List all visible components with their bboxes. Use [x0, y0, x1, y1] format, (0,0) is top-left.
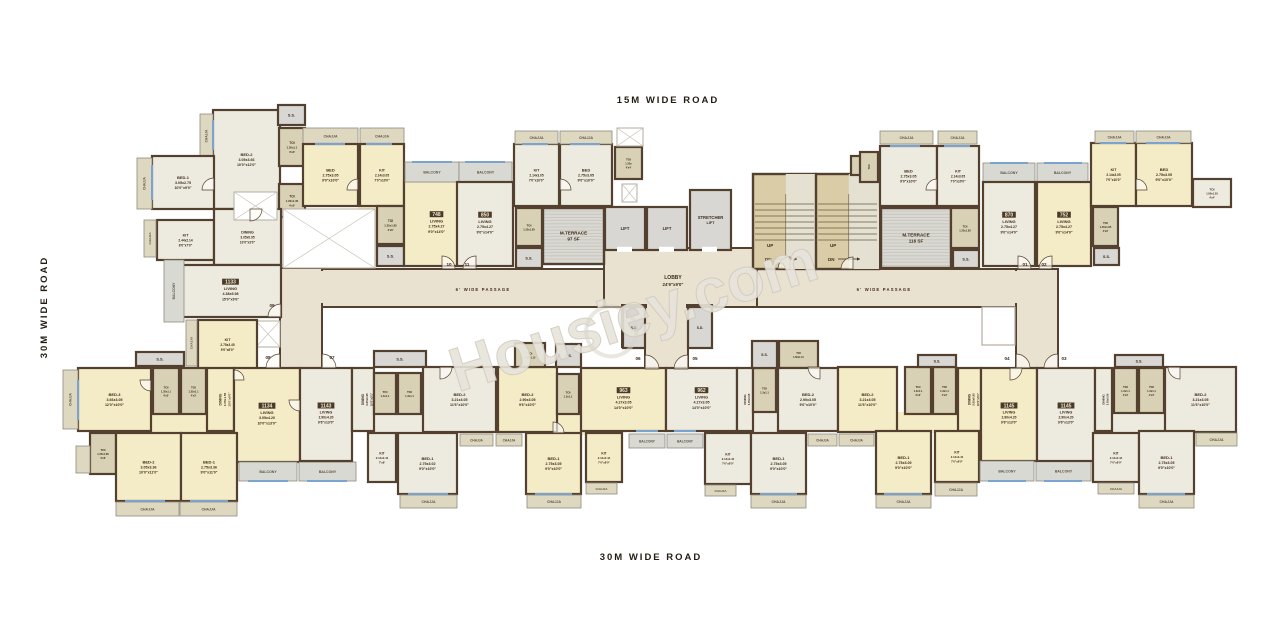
svg-text:1143: 1143 [321, 403, 332, 409]
svg-text:3.05x0.95: 3.05x0.95 [240, 236, 254, 240]
svg-text:1.80x1.20: 1.80x1.20 [1206, 192, 1218, 196]
svg-text:S.S.: S.S. [525, 257, 532, 261]
svg-text:2.75x3.05: 2.75x3.05 [901, 175, 917, 179]
svg-text:9'0"x10'0": 9'0"x10'0" [577, 179, 594, 183]
svg-text:DINING: DINING [743, 394, 747, 405]
svg-text:9'0"x10'0": 9'0"x10'0" [1158, 466, 1175, 470]
svg-text:KIT: KIT [379, 452, 384, 456]
svg-text:1145: 1145 [1061, 403, 1072, 409]
svg-text:2.90x3.05: 2.90x3.05 [520, 398, 536, 402]
svg-text:4'x6': 4'x6' [1103, 229, 1109, 233]
svg-text:01: 01 [1022, 262, 1028, 267]
svg-text:1.3x1.1: 1.3x1.1 [940, 389, 949, 393]
svg-text:CHAJJA: CHAJJA [1159, 500, 1173, 504]
svg-text:4'x6': 4'x6' [388, 228, 394, 232]
svg-text:9'6"x13'0": 9'6"x13'0" [1058, 421, 1075, 425]
svg-text:CHAJJA: CHAJJA [68, 392, 72, 405]
svg-text:KIT: KIT [183, 234, 190, 238]
svg-text:9'0"x14'0": 9'0"x14'0" [476, 230, 493, 234]
svg-text:4'x3': 4'x3' [191, 394, 197, 398]
svg-text:KIT: KIT [725, 453, 730, 457]
svg-text:4'x3': 4'x3' [163, 394, 169, 398]
svg-text:2.14x3.05: 2.14x3.05 [375, 174, 389, 178]
svg-text:CHAJJA: CHAJJA [375, 134, 389, 138]
svg-text:4.27x3.05: 4.27x3.05 [694, 401, 710, 405]
svg-text:4'x4': 4'x4' [626, 166, 632, 170]
svg-text:LIVING: LIVING [1003, 411, 1016, 415]
svg-text:9'0"x14'0": 9'0"x14'0" [1055, 230, 1072, 234]
svg-text:9'0"x10'0": 9'0"x10'0" [900, 180, 917, 184]
svg-text:TOI: TOI [383, 390, 388, 394]
svg-text:CHAJJA: CHAJJA [896, 500, 910, 504]
svg-text:2.14x2.44: 2.14x2.44 [1110, 456, 1123, 460]
svg-text:TOI: TOI [942, 385, 947, 389]
svg-text:KIT: KIT [1113, 452, 1118, 456]
svg-text:S.S.: S.S. [761, 353, 768, 357]
svg-text:9'6"x10'0": 9'6"x10'0" [799, 403, 816, 407]
svg-text:10'0"x5'0": 10'0"x5'0" [227, 392, 231, 407]
svg-text:10'0"x9'0": 10'0"x9'0" [174, 186, 191, 190]
svg-text:3.05x0.95: 3.05x0.95 [747, 393, 751, 405]
svg-text:BED: BED [904, 168, 913, 173]
svg-text:CHAJJA: CHAJJA [1110, 487, 1123, 491]
svg-text:870: 870 [1005, 213, 1014, 219]
svg-text:9'0"x10'0": 9'0"x10'0" [419, 467, 436, 471]
svg-text:1.80x1.10: 1.80x1.10 [793, 356, 804, 359]
svg-text:1.35x1.85: 1.35x1.85 [1100, 225, 1112, 229]
svg-text:850: 850 [481, 213, 490, 219]
svg-text:KIT: KIT [601, 452, 606, 456]
svg-text:TOI: TOI [762, 386, 767, 390]
svg-text:BED-2: BED-2 [521, 392, 534, 397]
svg-text:S.S.: S.S. [1103, 255, 1110, 259]
svg-text:CHAJJA: CHAJJA [470, 438, 483, 442]
svg-text:CHAJJA: CHAJJA [1107, 135, 1121, 139]
svg-text:BED-1: BED-1 [772, 456, 785, 461]
svg-text:4.38x5.98: 4.38x5.98 [223, 292, 239, 296]
svg-text:CHAJJA: CHAJJA [189, 336, 193, 349]
svg-text:CHAJJA: CHAJJA [201, 507, 215, 511]
svg-text:2.75x3.05: 2.75x3.05 [1156, 173, 1172, 177]
svg-text:TOI: TOI [626, 157, 631, 161]
svg-text:LIVING: LIVING [478, 219, 491, 224]
svg-text:7'x8': 7'x8' [379, 460, 385, 464]
svg-text:LIFT: LIFT [706, 221, 715, 225]
svg-text:7'0"x8'0": 7'0"x8'0" [1110, 460, 1122, 464]
svg-text:1134: 1134 [262, 404, 273, 410]
svg-text:LIVING: LIVING [320, 411, 333, 415]
svg-text:3.66x3.05: 3.66x3.05 [107, 398, 123, 402]
svg-text:1.3x1.1: 1.3x1.1 [760, 391, 769, 395]
svg-text:BED-3: BED-3 [108, 392, 121, 397]
svg-text:2.75x3.05: 2.75x3.05 [771, 462, 787, 466]
svg-text:LIFT: LIFT [663, 226, 672, 231]
svg-text:BED-1: BED-1 [1160, 455, 1173, 460]
svg-text:752: 752 [1060, 213, 1069, 219]
svg-text:9'0"x10'0": 9'0"x10'0" [322, 179, 339, 183]
svg-text:2.75x3.05: 2.75x3.05 [323, 174, 339, 178]
svg-text:2.75x4.27: 2.75x4.27 [477, 225, 493, 229]
svg-text:07: 07 [329, 355, 335, 360]
svg-text:1.35x1.1: 1.35x1.1 [287, 146, 298, 150]
svg-text:BED-1: BED-1 [421, 456, 434, 461]
svg-text:1.35x1.85: 1.35x1.85 [523, 228, 535, 232]
svg-text:7'0"x8'0": 7'0"x8'0" [598, 460, 610, 464]
svg-text:BED-1: BED-1 [177, 175, 190, 180]
svg-text:14'0"x10'0": 14'0"x10'0" [692, 406, 711, 410]
svg-text:10'0"x3'0": 10'0"x3'0" [240, 240, 256, 244]
svg-text:7'0"x10'0": 7'0"x10'0" [950, 179, 966, 183]
svg-text:BALCONY: BALCONY [1055, 469, 1073, 473]
svg-text:KIT: KIT [955, 170, 962, 174]
svg-text:1.3x1.1: 1.3x1.1 [1147, 389, 1156, 393]
svg-text:TOI: TOI [527, 223, 532, 227]
svg-text:02: 02 [1041, 262, 1047, 267]
svg-text:1.35x1.85: 1.35x1.85 [384, 224, 397, 228]
svg-text:10'0"x3'1": 10'0"x3'1" [976, 392, 980, 406]
svg-text:11: 11 [465, 262, 470, 267]
svg-text:TOI: TOI [916, 385, 921, 389]
svg-text:1.3x1.1: 1.3x1.1 [914, 389, 923, 393]
svg-text:2.14x3.05: 2.14x3.05 [1106, 173, 1120, 177]
svg-text:2.75x3.05: 2.75x3.05 [1159, 461, 1175, 465]
svg-text:9'6"x13'0": 9'6"x13'0" [1001, 421, 1018, 425]
svg-text:11'6"x10'0": 11'6"x10'0" [1191, 403, 1210, 407]
svg-text:1.35x1.85: 1.35x1.85 [97, 452, 109, 456]
svg-text:DINING: DINING [1101, 394, 1105, 405]
svg-text:2.75x4.27: 2.75x4.27 [429, 225, 445, 229]
svg-text:TOI: TOI [407, 390, 412, 394]
svg-text:S.S.: S.S. [934, 360, 941, 364]
svg-text:3.05x3.36: 3.05x3.36 [141, 466, 157, 470]
svg-text:TOI: TOI [191, 385, 196, 389]
svg-text:S.S.: S.S. [1136, 360, 1143, 364]
svg-text:S.S.: S.S. [288, 114, 295, 118]
svg-text:CHAJJA: CHAJJA [1209, 438, 1223, 442]
svg-text:30M WIDE ROAD: 30M WIDE ROAD [39, 256, 50, 359]
svg-text:4'x6': 4'x6' [100, 456, 106, 460]
svg-text:3.21x3.05: 3.21x3.05 [860, 398, 876, 402]
svg-text:CHAJJA: CHAJJA [579, 136, 593, 140]
svg-text:04: 04 [1004, 356, 1010, 361]
svg-text:116 SF: 116 SF [909, 239, 924, 244]
svg-text:9'0"x8'0": 9'0"x8'0" [221, 348, 235, 352]
svg-text:10'0"x13'0": 10'0"x13'0" [257, 421, 276, 425]
svg-text:BED-1: BED-1 [203, 459, 216, 464]
svg-text:BALCONY: BALCONY [639, 439, 656, 443]
svg-text:4'x4': 4'x4' [1209, 196, 1215, 200]
svg-text:BALCONY: BALCONY [319, 470, 337, 474]
svg-text:BALCONY: BALCONY [259, 470, 277, 474]
svg-text:1.3x1.1: 1.3x1.1 [564, 395, 573, 399]
svg-text:7'0"x8'0": 7'0"x8'0" [722, 461, 734, 465]
svg-text:09: 09 [269, 303, 275, 308]
svg-text:3.05x1.55: 3.05x1.55 [223, 393, 227, 407]
svg-text:97 SF: 97 SF [567, 237, 579, 242]
svg-text:7'0"x8'0": 7'0"x8'0" [951, 459, 963, 463]
svg-text:TOI: TOI [1210, 187, 1215, 191]
svg-text:7'0"x10'0": 7'0"x10'0" [1106, 178, 1122, 182]
svg-text:CHAJJA: CHAJJA [816, 438, 829, 442]
svg-text:4'x3': 4'x3' [289, 150, 295, 154]
svg-text:CHAJJA: CHAJJA [547, 500, 561, 504]
svg-text:LIVING: LIVING [430, 218, 443, 223]
svg-text:2.75x4.27: 2.75x4.27 [1056, 225, 1072, 229]
svg-text:12'0"x10'0": 12'0"x10'0" [105, 403, 124, 407]
svg-text:CHAJJA: CHAJJA [140, 507, 154, 511]
svg-text:9'6"x13'0": 9'6"x13'0" [318, 421, 335, 425]
svg-text:BED: BED [326, 167, 335, 172]
svg-text:9'0"x10'0": 9'0"x10'0" [770, 467, 787, 471]
svg-text:BALCONY: BALCONY [677, 439, 694, 443]
svg-text:BED: BED [1160, 167, 1169, 172]
svg-text:CHAJJA: CHAJJA [899, 136, 913, 140]
svg-text:03: 03 [1061, 356, 1067, 361]
svg-text:LIVING: LIVING [1002, 219, 1015, 224]
svg-text:LIVING: LIVING [617, 394, 630, 399]
svg-text:3.05x3.66: 3.05x3.66 [239, 158, 255, 162]
svg-text:BED-2: BED-2 [142, 459, 155, 464]
svg-text:CHAJJA: CHAJJA [148, 232, 152, 245]
svg-text:2.90x4.20: 2.90x4.20 [1058, 416, 1073, 420]
svg-text:3.21x3.05: 3.21x3.05 [1193, 398, 1209, 402]
svg-text:BED-1: BED-1 [547, 456, 560, 461]
svg-text:BALCONY: BALCONY [423, 170, 441, 174]
svg-text:2.75x3.45: 2.75x3.45 [220, 343, 234, 347]
svg-text:BED-2: BED-2 [1194, 392, 1207, 397]
svg-text:7'0"x10'0": 7'0"x10'0" [529, 178, 545, 182]
svg-text:9'0"x10'0": 9'0"x10'0" [895, 466, 912, 470]
svg-text:S.S.: S.S. [156, 358, 163, 362]
svg-text:TOI: TOI [289, 141, 294, 145]
svg-text:CHAJJA: CHAJJA [714, 489, 727, 493]
svg-text:CHAJJA: CHAJJA [142, 176, 146, 189]
svg-text:10'0"x12'0": 10'0"x12'0" [237, 163, 256, 167]
svg-text:TOI: TOI [388, 219, 393, 223]
svg-text:962: 962 [697, 388, 706, 394]
svg-text:TOI: TOI [289, 195, 294, 199]
svg-text:TOI: TOI [164, 385, 169, 389]
svg-text:1.3x1.1: 1.3x1.1 [381, 394, 390, 398]
svg-text:TOI: TOI [1123, 385, 1128, 389]
svg-text:2.44x2.14: 2.44x2.14 [178, 239, 192, 243]
svg-text:TOI: TOI [566, 390, 571, 394]
svg-text:9'0"x14'0": 9'0"x14'0" [428, 230, 445, 234]
svg-text:2.14x2.44: 2.14x2.44 [376, 456, 389, 460]
svg-text:1.35x1.85: 1.35x1.85 [959, 229, 971, 233]
svg-text:14'0"x10'0": 14'0"x10'0" [614, 406, 633, 410]
svg-text:4'x3': 4'x3' [1149, 393, 1155, 397]
svg-text:2.75x3.36: 2.75x3.36 [201, 466, 217, 470]
svg-text:LIVING: LIVING [1060, 411, 1073, 415]
svg-text:CHAJJA: CHAJJA [950, 136, 964, 140]
svg-text:15M WIDE ROAD: 15M WIDE ROAD [617, 95, 720, 106]
svg-text:CHAJJA: CHAJJA [421, 500, 435, 504]
svg-text:06: 06 [635, 356, 641, 361]
svg-text:BED-2: BED-2 [802, 392, 815, 397]
svg-text:748: 748 [432, 212, 441, 218]
svg-text:LIVING: LIVING [695, 394, 708, 399]
svg-text:9'0"x14'0": 9'0"x14'0" [1000, 230, 1017, 234]
svg-text:BALCONY: BALCONY [1000, 171, 1018, 175]
svg-text:CHAJJA: CHAJJA [949, 488, 963, 492]
svg-text:1.20x1.35: 1.20x1.35 [286, 199, 299, 203]
svg-text:BALCONY: BALCONY [1054, 171, 1072, 175]
svg-text:10'0"x11'0": 10'0"x11'0" [139, 471, 158, 475]
svg-text:963: 963 [619, 388, 628, 394]
svg-text:M.TERRACE: M.TERRACE [902, 233, 929, 238]
svg-text:CHAJJA: CHAJJA [323, 134, 337, 138]
svg-text:CHAJJA: CHAJJA [595, 487, 608, 491]
svg-text:BED-1: BED-1 [897, 455, 910, 460]
svg-text:CHAJJA: CHAJJA [1156, 135, 1170, 139]
svg-text:KIT: KIT [225, 338, 232, 342]
svg-text:BED: BED [582, 167, 591, 172]
svg-text:8'0"x7'0": 8'0"x7'0" [179, 243, 193, 247]
svg-text:2.75x3.05: 2.75x3.05 [578, 174, 594, 178]
svg-text:M.TERRACE: M.TERRACE [560, 231, 587, 236]
svg-text:7'0"x10'0": 7'0"x10'0" [374, 178, 390, 182]
svg-text:30M WIDE ROAD: 30M WIDE ROAD [600, 552, 703, 563]
svg-text:BED-2: BED-2 [240, 152, 253, 157]
svg-text:3.05x0.95: 3.05x0.95 [365, 393, 369, 406]
svg-text:TOI: TOI [1103, 221, 1108, 225]
svg-text:2.90x3.05: 2.90x3.05 [800, 398, 816, 402]
svg-text:6' WIDE PASSAGE: 6' WIDE PASSAGE [857, 287, 912, 292]
svg-text:CHAJJA: CHAJJA [204, 129, 208, 142]
svg-text:1.3x1.1: 1.3x1.1 [1121, 389, 1130, 393]
svg-text:TOI: TOI [796, 351, 801, 355]
svg-text:11'6"x10'0": 11'6"x10'0" [858, 403, 877, 407]
svg-text:LIVING: LIVING [1057, 219, 1070, 224]
svg-text:BALCONY: BALCONY [477, 170, 495, 174]
svg-text:DINING: DINING [241, 231, 254, 235]
svg-text:3.05x4.20: 3.05x4.20 [259, 416, 275, 420]
svg-text:BALCONY: BALCONY [172, 282, 176, 300]
svg-text:2.75x3.05: 2.75x3.05 [896, 461, 912, 465]
svg-text:1133: 1133 [225, 280, 236, 286]
svg-text:2.14x2.44: 2.14x2.44 [722, 457, 735, 461]
svg-text:2.14x3.05: 2.14x3.05 [951, 175, 965, 179]
svg-text:CHAJJA: CHAJJA [529, 136, 543, 140]
svg-text:9'0"x10'0": 9'0"x10'0" [545, 467, 562, 471]
svg-text:DN: DN [828, 257, 835, 262]
svg-text:LIVING: LIVING [224, 286, 237, 291]
svg-text:KIT: KIT [379, 169, 386, 173]
svg-text:3.05x2.75: 3.05x2.75 [175, 181, 191, 185]
svg-text:4'x3': 4'x3' [915, 393, 921, 397]
svg-text:2.90x4.20: 2.90x4.20 [1001, 416, 1016, 420]
svg-text:2.75x4.27: 2.75x4.27 [1001, 225, 1017, 229]
svg-text:1.3x1.1: 1.3x1.1 [405, 394, 414, 398]
svg-text:CHAJJA: CHAJJA [503, 438, 516, 442]
svg-text:TOI: TOI [867, 164, 871, 169]
svg-text:S.S.: S.S. [387, 255, 394, 259]
svg-text:9'0"x10'0": 9'0"x10'0" [1155, 178, 1172, 182]
svg-text:4'x5': 4'x5' [289, 203, 295, 207]
svg-text:2.14x2.44: 2.14x2.44 [598, 456, 611, 460]
svg-text:2.75x3.02: 2.75x3.02 [420, 462, 436, 466]
svg-text:4.27x3.05: 4.27x3.05 [616, 401, 632, 405]
svg-text:CHAJJA: CHAJJA [850, 438, 863, 442]
svg-text:9'6"x10'0": 9'6"x10'0" [519, 403, 536, 407]
svg-text:4'x3': 4'x3' [942, 393, 948, 397]
svg-text:KIT: KIT [954, 451, 959, 455]
svg-text:4'x3': 4'x3' [1123, 393, 1129, 397]
svg-text:3.05x0.95: 3.05x0.95 [972, 393, 976, 406]
svg-text:LIFT: LIFT [621, 226, 630, 231]
svg-text:1.35x1.1: 1.35x1.1 [161, 390, 172, 394]
svg-text:2.14x3.44: 2.14x3.44 [951, 455, 964, 459]
svg-text:S.S.: S.S. [396, 358, 403, 362]
svg-text:CHAJJA: CHAJJA [771, 500, 785, 504]
svg-text:BED-2: BED-2 [861, 392, 874, 397]
svg-text:UP: UP [830, 243, 836, 248]
svg-text:DINING: DINING [218, 393, 222, 405]
svg-text:KIT: KIT [1111, 168, 1118, 172]
svg-text:2.14x3.05: 2.14x3.05 [529, 174, 543, 178]
svg-text:S.S.: S.S. [962, 258, 969, 262]
svg-text:15'0"x9'6": 15'0"x9'6" [222, 297, 239, 301]
svg-text:BALCONY: BALCONY [998, 469, 1016, 473]
svg-text:3.05x0.95: 3.05x0.95 [1105, 393, 1109, 405]
svg-text:1145: 1145 [1004, 403, 1015, 409]
svg-text:2.75x3.05: 2.75x3.05 [546, 462, 562, 466]
svg-text:1.35x1.1: 1.35x1.1 [188, 390, 199, 394]
svg-text:08: 08 [265, 355, 271, 360]
svg-text:TOI: TOI [963, 224, 968, 228]
svg-text:LIVING: LIVING [260, 410, 273, 415]
svg-text:TOI: TOI [1149, 385, 1154, 389]
svg-text:6' WIDE PASSAGE: 6' WIDE PASSAGE [456, 287, 511, 292]
svg-text:9'0"x11'0": 9'0"x11'0" [201, 471, 218, 475]
svg-text:10: 10 [446, 262, 452, 267]
svg-text:2.90x4.20: 2.90x4.20 [318, 416, 333, 420]
svg-text:05: 05 [692, 356, 698, 361]
svg-text:1.35x: 1.35x [625, 162, 632, 166]
svg-text:STRETCHER: STRETCHER [698, 215, 724, 220]
svg-text:KIT: KIT [534, 169, 541, 173]
svg-text:TOI: TOI [101, 448, 106, 452]
